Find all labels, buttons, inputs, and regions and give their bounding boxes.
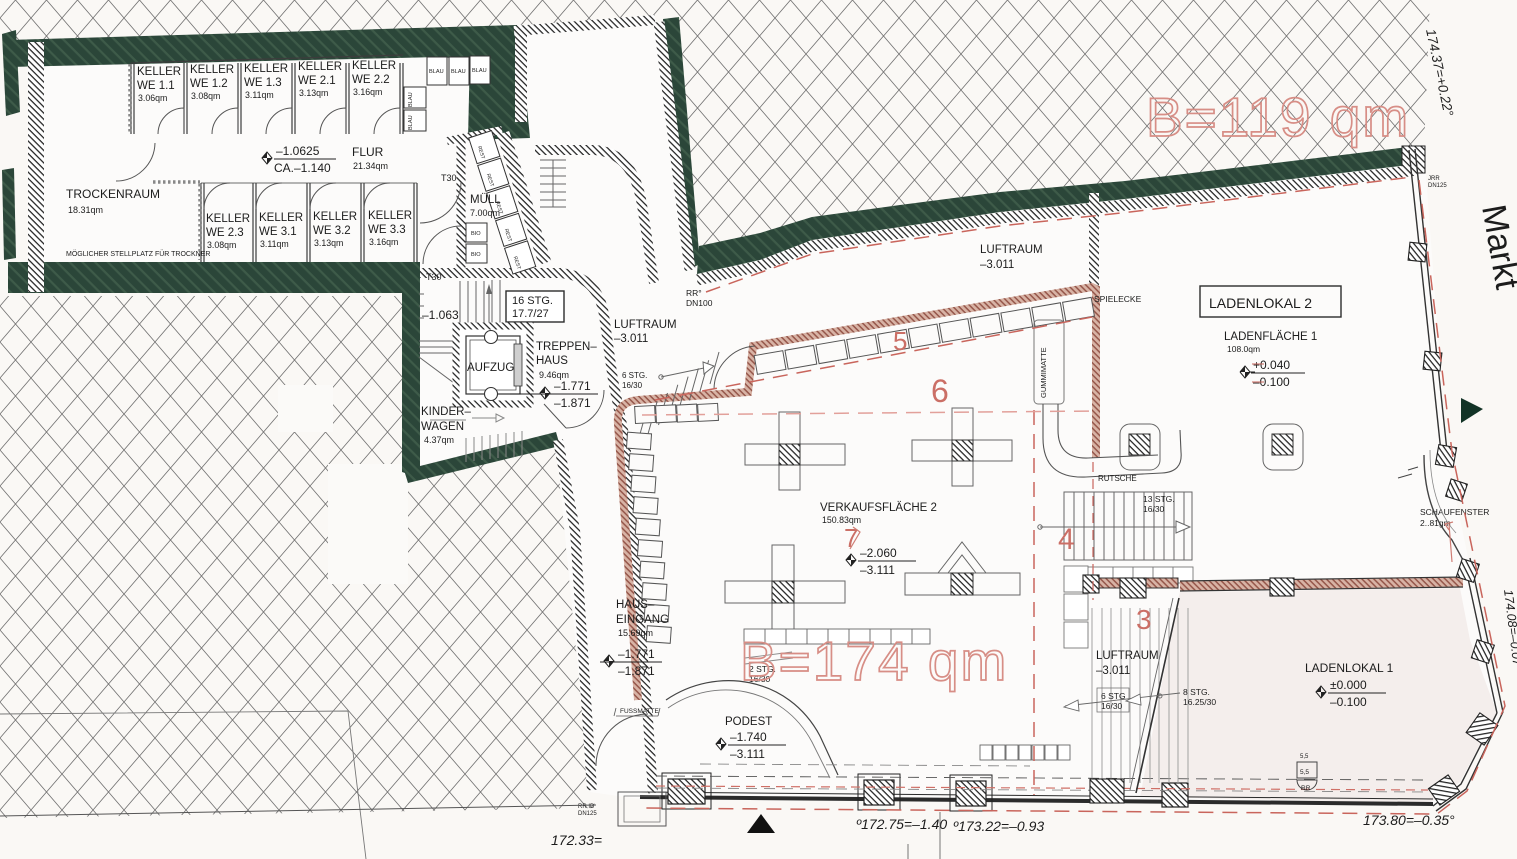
svg-text:WE 3.2: WE 3.2 [313, 225, 351, 237]
svg-text:BLAU: BLAU [408, 115, 414, 130]
svg-text:5,5: 5,5 [1300, 769, 1309, 776]
svg-text:–3.011: –3.011 [980, 259, 1014, 271]
svg-text:16 STG.: 16 STG. [512, 295, 553, 307]
svg-text:KELLER: KELLER [244, 63, 288, 75]
svg-text:LUFTRAUM: LUFTRAUM [1096, 650, 1159, 662]
svg-text:LUFTRAUM: LUFTRAUM [614, 319, 677, 331]
svg-text:VERKAUFSFLÄCHE 2: VERKAUFSFLÄCHE 2 [820, 502, 937, 514]
svg-text:17.7/27: 17.7/27 [512, 308, 549, 320]
svg-text:MÜLL: MÜLL [470, 194, 501, 206]
svg-text:HAUS: HAUS [536, 355, 568, 367]
svg-text:3.11qm: 3.11qm [260, 239, 289, 249]
svg-text:108.0qm: 108.0qm [1227, 344, 1260, 354]
svg-text:GUMMIMATTE: GUMMIMATTE [1039, 347, 1048, 398]
svg-text:6: 6 [931, 373, 949, 409]
svg-text:15.69qm: 15.69qm [618, 628, 653, 638]
svg-text:173.80=–0.35°: 173.80=–0.35° [1363, 812, 1455, 828]
svg-text:AUFZUG: AUFZUG [467, 362, 514, 374]
svg-text:WE 3.3: WE 3.3 [368, 224, 406, 236]
svg-text:3.13qm: 3.13qm [314, 238, 343, 248]
svg-text:WE 2.2: WE 2.2 [352, 74, 390, 86]
svg-text:±0.000: ±0.000 [1330, 678, 1367, 692]
svg-text:–1.771: –1.771 [554, 379, 591, 393]
svg-text:WE 2.3: WE 2.3 [206, 227, 244, 239]
svg-text:BLAU: BLAU [451, 69, 466, 75]
svg-text:+0.040: +0.040 [1253, 358, 1290, 372]
svg-text:T30: T30 [426, 272, 442, 282]
svg-text:DN100: DN100 [686, 298, 713, 308]
svg-text:5,5: 5,5 [1300, 754, 1309, 760]
svg-text:–3.111: –3.111 [730, 747, 765, 761]
svg-text:WAGEN: WAGEN [421, 421, 464, 433]
svg-text:172.33=: 172.33= [551, 832, 602, 848]
svg-text:LADENLOKAL 1: LADENLOKAL 1 [1305, 661, 1394, 675]
svg-text:3.13qm: 3.13qm [299, 88, 328, 98]
svg-text:3.16qm: 3.16qm [369, 237, 398, 247]
svg-text:–3.011: –3.011 [614, 333, 648, 345]
svg-text:DN125: DN125 [1428, 183, 1447, 189]
svg-text:KELLER: KELLER [298, 61, 342, 73]
svg-text:–1.063: –1.063 [422, 308, 459, 322]
svg-text:–1.871: –1.871 [618, 664, 655, 678]
svg-text:TROCKENRAUM: TROCKENRAUM [66, 187, 160, 201]
svg-text:–3.111: –3.111 [860, 563, 895, 577]
svg-text:LADENLOKAL 2: LADENLOKAL 2 [1209, 295, 1312, 311]
svg-text:TREPPEN–: TREPPEN– [536, 341, 597, 353]
svg-text:21.34qm: 21.34qm [353, 161, 388, 171]
svg-text:KELLER: KELLER [352, 60, 396, 72]
svg-text:–0.100: –0.100 [1330, 695, 1367, 709]
svg-text:BIO: BIO [471, 231, 481, 237]
svg-text:–1.0625: –1.0625 [276, 144, 320, 158]
svg-text:KELLER: KELLER [137, 66, 181, 78]
svg-text:7.00qm: 7.00qm [470, 208, 500, 218]
svg-text:DN125: DN125 [578, 811, 597, 817]
svg-text:3.06qm: 3.06qm [138, 93, 167, 103]
svg-text:JRR: JRR [1428, 176, 1440, 182]
svg-text:KELLER: KELLER [259, 212, 303, 224]
svg-text:KELLER: KELLER [313, 211, 357, 223]
svg-text:FUSSMATTE: FUSSMATTE [620, 708, 660, 715]
svg-text:13 STG.: 13 STG. [1143, 494, 1175, 504]
svg-text:KELLER: KELLER [190, 64, 234, 76]
svg-text:KINDER–: KINDER– [421, 406, 471, 418]
svg-text:WE 2.1: WE 2.1 [298, 75, 336, 87]
svg-text:RR°: RR° [686, 288, 702, 298]
svg-text:SPIELECKE: SPIELECKE [1094, 294, 1142, 304]
svg-text:–1.771: –1.771 [618, 647, 655, 661]
svg-text:RUTSCHE: RUTSCHE [1098, 474, 1137, 483]
svg-text:16/30: 16/30 [1143, 504, 1165, 514]
svg-text:KELLER: KELLER [206, 213, 250, 225]
svg-text:KELLER: KELLER [368, 210, 412, 222]
svg-text:FLUR: FLUR [352, 145, 384, 159]
svg-text:WE 1.1: WE 1.1 [137, 80, 175, 92]
svg-text:5: 5 [893, 326, 907, 356]
svg-text:B=174 qm: B=174 qm [740, 630, 1008, 692]
svg-text:BLAU: BLAU [429, 69, 444, 75]
svg-text:3.08qm: 3.08qm [207, 240, 236, 250]
svg-text:3.08qm: 3.08qm [191, 91, 220, 101]
svg-text:3: 3 [1136, 604, 1152, 635]
svg-text:SCHAUFENSTER: SCHAUFENSTER [1420, 507, 1489, 517]
svg-text:16/30: 16/30 [1101, 701, 1123, 711]
svg-text:B=119 qm: B=119 qm [1146, 86, 1410, 148]
svg-text:º172.75=–1.40: º172.75=–1.40 [856, 816, 947, 832]
svg-text:WE 1.2: WE 1.2 [190, 78, 228, 90]
svg-text:º173.22=–0.93: º173.22=–0.93 [953, 818, 1044, 834]
svg-text:3.16qm: 3.16qm [353, 87, 382, 97]
svg-text:MÖGLICHER STELLPLATZ FÜR TROCK: MÖGLICHER STELLPLATZ FÜR TROCKNER [66, 250, 210, 258]
svg-text:–2.060: –2.060 [860, 546, 897, 560]
svg-text:LUFTRAUM: LUFTRAUM [980, 244, 1043, 256]
svg-text:–1.740: –1.740 [730, 730, 767, 744]
svg-text:18.31qm: 18.31qm [68, 205, 103, 215]
svg-text:HAUS–: HAUS– [616, 599, 655, 611]
svg-text:–3.011: –3.011 [1096, 665, 1130, 677]
svg-text:LADENFLÄCHE 1: LADENFLÄCHE 1 [1224, 331, 1317, 343]
svg-text:RR: RR [1301, 785, 1311, 792]
svg-text:CA.–1.140: CA.–1.140 [274, 161, 331, 175]
svg-text:8 STG.: 8 STG. [1183, 687, 1210, 697]
svg-text:BLAU: BLAU [408, 92, 414, 107]
svg-text:4: 4 [1058, 523, 1075, 556]
svg-text:T30: T30 [441, 173, 457, 183]
svg-text:3.11qm: 3.11qm [245, 90, 274, 100]
svg-text:PODEST: PODEST [725, 716, 772, 728]
svg-text:–1.871: –1.871 [554, 396, 591, 410]
svg-text:WE 1.3: WE 1.3 [244, 77, 282, 89]
svg-text:BLAU: BLAU [472, 68, 487, 74]
svg-text:WE 3.1: WE 3.1 [259, 226, 297, 238]
svg-text:16.25/30: 16.25/30 [1183, 697, 1216, 707]
svg-text:16/30: 16/30 [622, 381, 643, 390]
svg-text:BIO: BIO [471, 252, 481, 258]
svg-text:4.37qm: 4.37qm [424, 435, 454, 445]
svg-text:EINGANG: EINGANG [616, 614, 669, 626]
svg-text:6 STG.: 6 STG. [622, 371, 647, 380]
